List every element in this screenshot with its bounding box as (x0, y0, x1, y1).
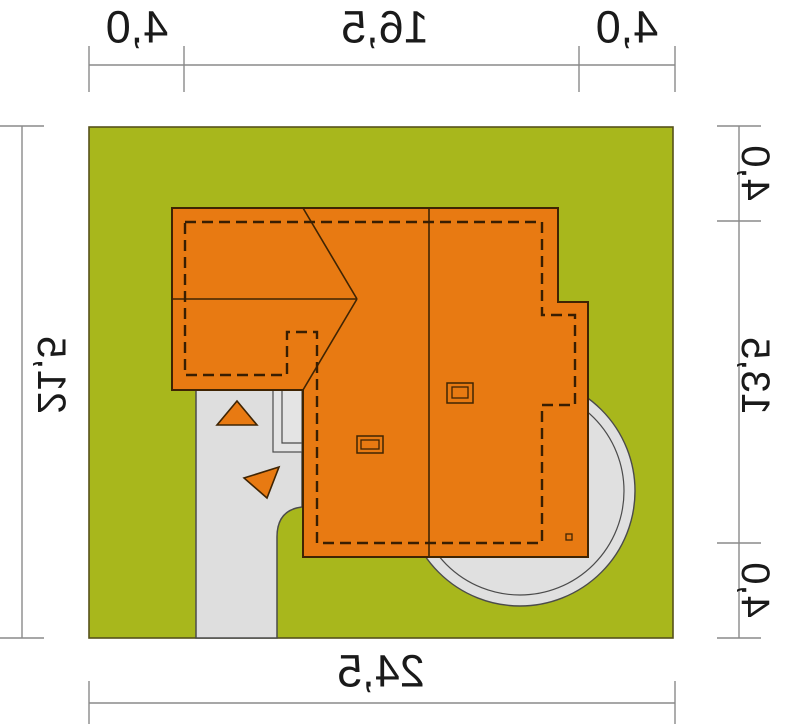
dim-label-top-right: 4,0 (106, 2, 169, 53)
dim-label-top-left: 4,0 (596, 2, 659, 53)
dim-label-bottom-total: 24,5 (337, 646, 425, 697)
site-plan-page: 4,0 16,5 4,0 24,5 4,0 13,5 4,0 (0, 0, 800, 725)
dimension-side-total: 21,5 (0, 126, 73, 638)
mirrored-scene: 4,0 16,5 4,0 24,5 4,0 13,5 4,0 (0, 0, 800, 725)
dim-label-side-bottom: 4,0 (733, 562, 777, 618)
dim-label-side-middle: 13,5 (733, 337, 777, 415)
dimension-top: 4,0 16,5 4,0 (89, 2, 675, 93)
dim-label-side-top: 4,0 (733, 145, 777, 201)
site-plan-canvas: 4,0 16,5 4,0 24,5 4,0 13,5 4,0 (0, 0, 800, 725)
entrance-steps (273, 390, 302, 452)
dim-label-side-total: 21,5 (29, 336, 73, 414)
dimension-bottom: 24,5 (89, 646, 675, 725)
dimension-side-segments: 4,0 13,5 4,0 (717, 126, 777, 638)
dim-label-top-middle: 16,5 (341, 2, 429, 53)
